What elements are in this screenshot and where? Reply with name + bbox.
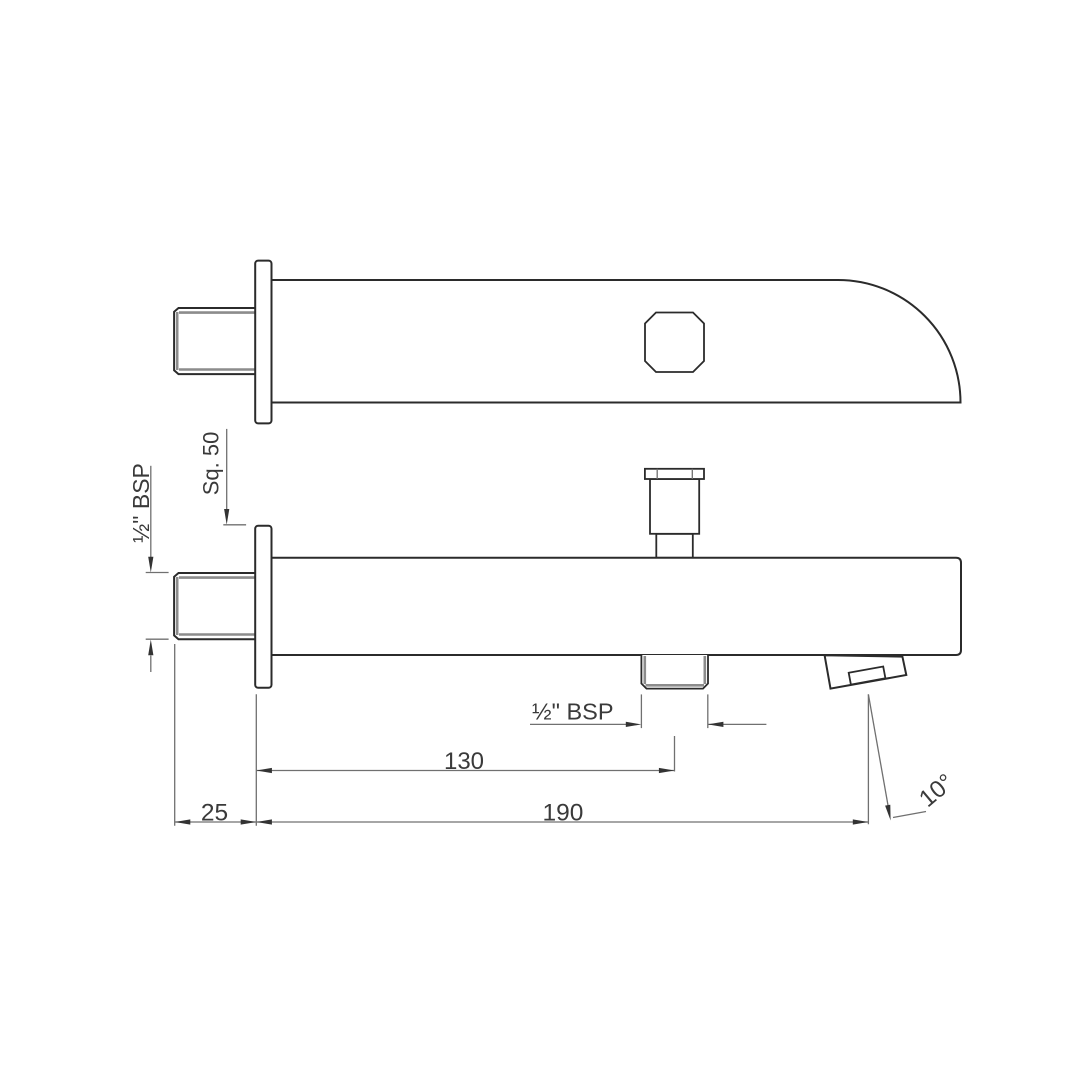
- svg-text:½" BSP: ½" BSP: [128, 463, 154, 543]
- svg-text:Sq. 50: Sq. 50: [199, 432, 224, 496]
- svg-text:½" BSP: ½" BSP: [532, 699, 614, 725]
